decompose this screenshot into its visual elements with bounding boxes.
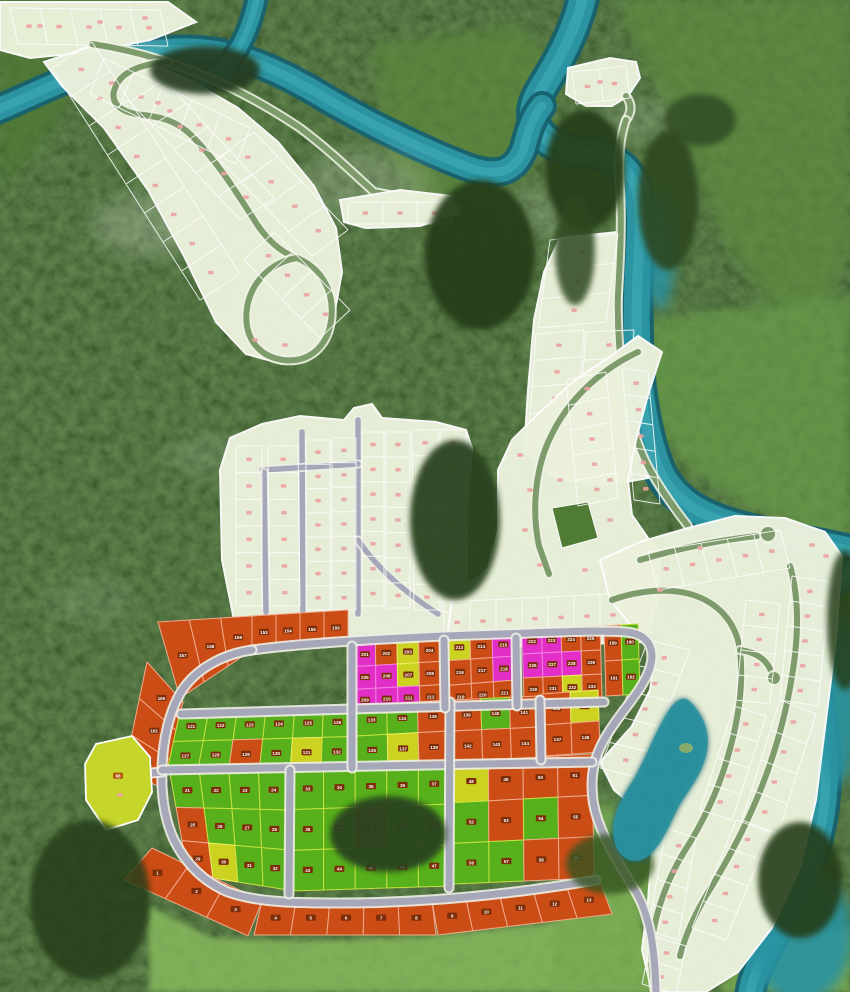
site-plan-svg: 1531541551561571581591601611622012022032…: [0, 0, 850, 992]
aerial-master-plan: 1531541551561571581591601611622012022032…: [0, 0, 850, 992]
photo-grain: [0, 0, 850, 992]
